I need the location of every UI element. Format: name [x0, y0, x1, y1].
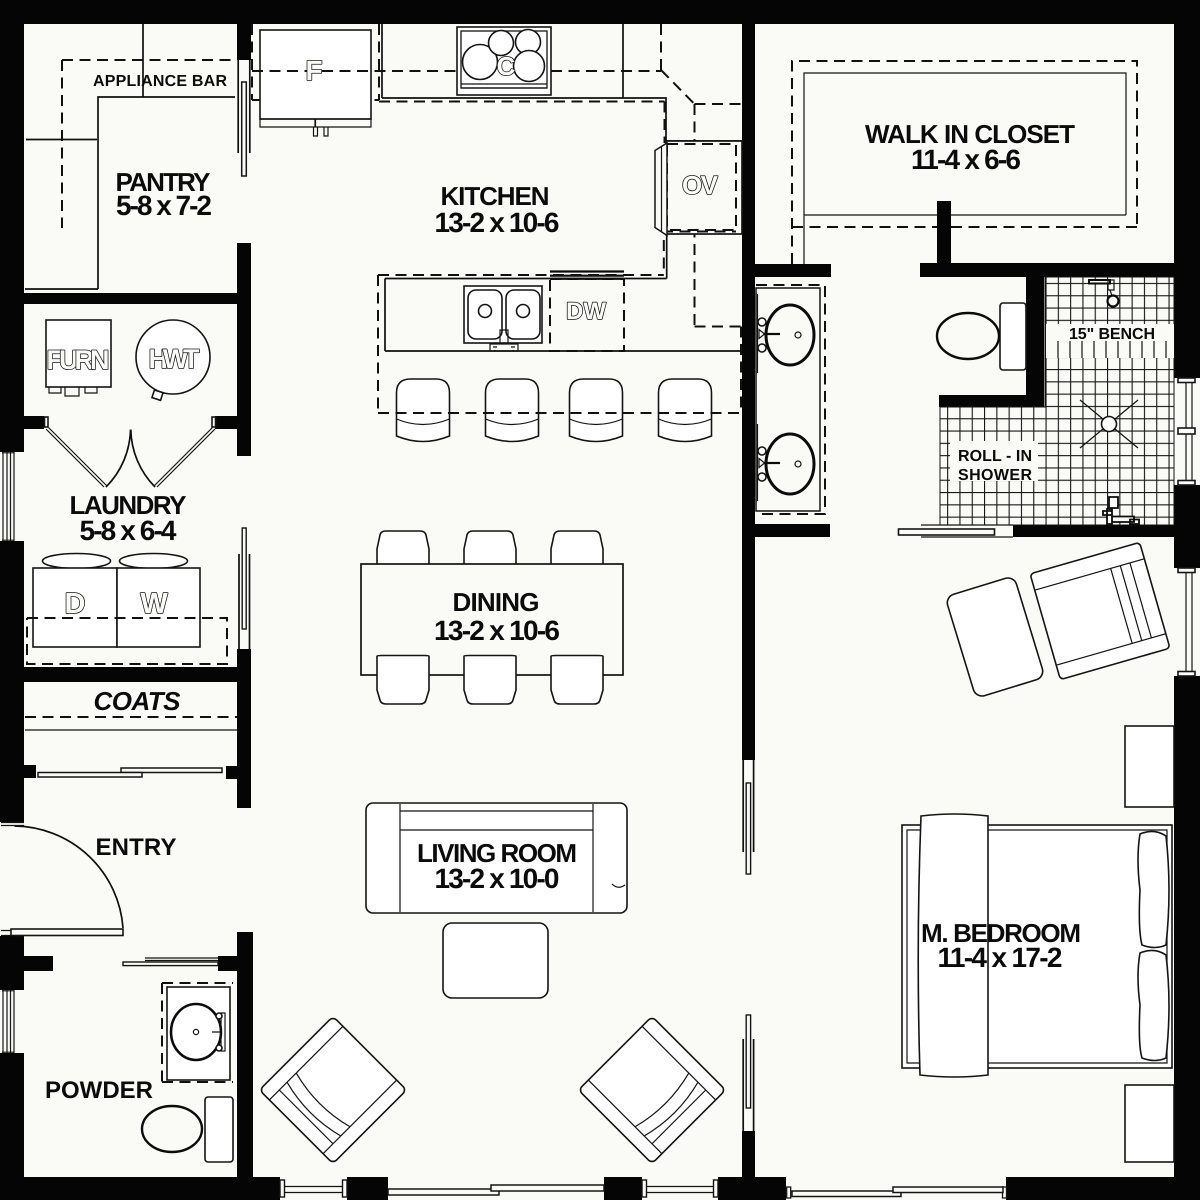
svg-text:C: C — [497, 51, 516, 81]
svg-text:POWDER: POWDER — [45, 1077, 153, 1104]
svg-text:DW: DW — [566, 298, 606, 325]
svg-text:OV: OV — [682, 170, 719, 200]
svg-text:13-2 x 10-6: 13-2 x 10-6 — [434, 615, 560, 646]
svg-text:11-4 x 17-2: 11-4 x 17-2 — [938, 942, 1063, 973]
svg-text:13-2 x 10-6: 13-2 x 10-6 — [435, 207, 560, 238]
svg-text:5-8 x 7-2: 5-8 x 7-2 — [116, 190, 212, 221]
svg-text:SHOWER: SHOWER — [958, 467, 1032, 484]
svg-text:11-4 x 6-6: 11-4 x 6-6 — [911, 144, 1021, 175]
svg-text:COATS: COATS — [94, 686, 182, 716]
svg-text:F: F — [305, 55, 322, 86]
svg-text:ROLL - IN: ROLL - IN — [958, 448, 1032, 465]
svg-text:HWT: HWT — [149, 344, 201, 374]
svg-text:15" BENCH: 15" BENCH — [1069, 326, 1155, 343]
svg-text:APPLIANCE BAR: APPLIANCE BAR — [93, 73, 227, 90]
svg-text:DINING: DINING — [453, 587, 540, 617]
svg-text:W: W — [140, 588, 168, 620]
svg-text:ENTRY: ENTRY — [96, 834, 177, 861]
svg-text:13-2 x 10-0: 13-2 x 10-0 — [435, 863, 560, 894]
svg-text:D: D — [65, 588, 86, 620]
svg-text:5-8 x 6-4: 5-8 x 6-4 — [80, 515, 177, 546]
svg-text:FURN: FURN — [47, 345, 110, 375]
